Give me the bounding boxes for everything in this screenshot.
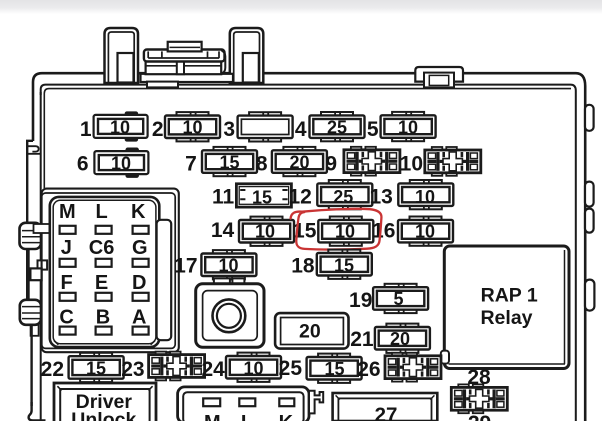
svg-text:B: B: [96, 307, 110, 329]
svg-text:25: 25: [333, 187, 353, 207]
svg-text:10: 10: [255, 221, 275, 241]
svg-text:15: 15: [86, 359, 106, 379]
svg-text:11: 11: [212, 185, 235, 208]
svg-text:22: 22: [41, 358, 64, 381]
svg-text:8: 8: [256, 152, 268, 175]
svg-text:18: 18: [291, 255, 315, 278]
svg-text:15: 15: [219, 152, 239, 172]
svg-text:C: C: [59, 307, 73, 329]
svg-text:10: 10: [218, 255, 238, 275]
svg-text:15: 15: [252, 187, 272, 207]
svg-text:13: 13: [369, 185, 392, 208]
svg-text:K: K: [279, 412, 294, 421]
svg-text:M: M: [204, 412, 221, 421]
svg-text:5: 5: [393, 289, 403, 309]
svg-text:10: 10: [110, 117, 130, 137]
svg-text:7: 7: [185, 152, 197, 175]
svg-text:10: 10: [400, 152, 423, 175]
svg-text:M: M: [59, 201, 76, 223]
svg-text:10: 10: [398, 117, 418, 137]
svg-text:3: 3: [223, 118, 235, 141]
svg-text:20: 20: [299, 320, 321, 342]
svg-text:G: G: [132, 237, 148, 259]
svg-text:15: 15: [324, 359, 344, 379]
svg-text:J: J: [61, 237, 72, 259]
svg-text:12: 12: [288, 185, 311, 208]
svg-text:K: K: [131, 201, 146, 223]
svg-text:25: 25: [279, 357, 303, 380]
svg-text:L: L: [95, 201, 107, 223]
svg-text:5: 5: [367, 118, 379, 141]
svg-text:23: 23: [121, 358, 144, 381]
svg-text:L: L: [241, 412, 253, 421]
svg-text:E: E: [95, 272, 108, 294]
svg-text:Relay: Relay: [480, 307, 532, 329]
svg-text:C6: C6: [89, 237, 115, 259]
svg-text:10: 10: [415, 222, 435, 242]
svg-text:4: 4: [295, 118, 307, 141]
svg-text:25: 25: [327, 117, 347, 137]
svg-text:14: 14: [211, 219, 235, 242]
svg-text:1: 1: [80, 118, 92, 141]
svg-text:F: F: [60, 272, 72, 294]
svg-text:10: 10: [111, 154, 131, 174]
svg-text:17: 17: [174, 255, 197, 278]
svg-text:26: 26: [357, 358, 380, 381]
svg-text:24: 24: [201, 358, 225, 381]
svg-text:15: 15: [334, 255, 354, 275]
svg-text:D: D: [132, 272, 146, 294]
svg-text:6: 6: [77, 152, 89, 175]
svg-text:21: 21: [350, 328, 374, 351]
svg-text:10: 10: [335, 222, 355, 242]
svg-text:16: 16: [372, 220, 395, 243]
svg-text:10: 10: [415, 187, 435, 207]
svg-text:RAP 1: RAP 1: [481, 285, 538, 307]
svg-text:9: 9: [325, 152, 337, 175]
svg-text:20: 20: [289, 152, 309, 172]
svg-text:2: 2: [152, 118, 164, 141]
svg-text:10: 10: [182, 117, 202, 137]
svg-text:20: 20: [390, 329, 410, 349]
svg-text:Unlock: Unlock: [71, 409, 136, 421]
svg-text:A: A: [132, 307, 146, 329]
svg-text:19: 19: [349, 289, 372, 312]
svg-text:10: 10: [243, 359, 263, 379]
svg-text:29: 29: [468, 412, 491, 421]
svg-text:27: 27: [375, 403, 398, 421]
